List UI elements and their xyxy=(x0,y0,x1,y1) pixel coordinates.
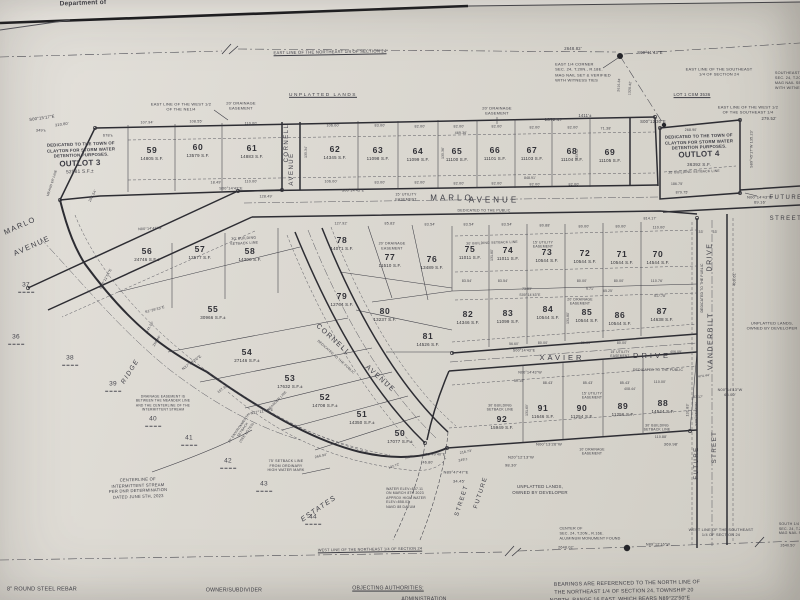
map-label: WEST LINE OF THE SOUTHEAST 1/4 OF SECTIO… xyxy=(689,528,754,538)
lot-number: 51 xyxy=(349,410,375,419)
map-label: N89°47'47"E xyxy=(444,469,469,474)
lot-68: 6811104 S.F. xyxy=(561,147,583,162)
lot-87: 8714638 S.F. xyxy=(651,307,674,322)
lot-73: 7310544 S.F. xyxy=(536,248,559,263)
map-label: 83.54' xyxy=(464,223,475,228)
map-label: 369.98' xyxy=(664,441,678,446)
map-label: 46.80' xyxy=(423,461,434,466)
lot-area: 15949 S.F. xyxy=(491,424,514,429)
map-label: DEDICATED TO THE PUBLIC xyxy=(457,209,510,214)
map-label: 82.00' xyxy=(415,125,426,130)
lot-area: 24746 S.F.± xyxy=(134,256,160,261)
map-label: 131.80' xyxy=(490,249,494,261)
map-label: 110.00' xyxy=(653,226,666,231)
lot-area: 11099 S.F. xyxy=(407,156,430,161)
map-label: SOUTH 1/4 C SEC. 24, T.2 MAG NAIL S xyxy=(779,522,800,536)
map-label: 80.00' xyxy=(538,341,548,345)
lot-number: 62 xyxy=(324,145,347,154)
map-label: LOT 1 CSM 3536 xyxy=(674,92,711,98)
lot-area: 14638 S.F. xyxy=(651,316,674,321)
map-label: 469.36' xyxy=(455,131,467,135)
lot-area: 11100 S.F. xyxy=(446,156,468,161)
lot-89: 8911256 S.F. xyxy=(612,402,635,417)
lot-50: 5017077 S.F.± xyxy=(387,429,413,444)
map-label: N50°40'40"E xyxy=(423,453,446,458)
map-label: N89°12'16"W xyxy=(646,543,670,548)
map-label: 20' DRAINAGE EASEMENT xyxy=(379,241,406,250)
lot-number: 66 xyxy=(484,146,506,155)
lot-area: 14526 S.F. xyxy=(417,341,440,346)
lot-60: 6013579 S.F. xyxy=(187,143,210,158)
lot-85: 8510544 S.F. xyxy=(576,308,599,323)
map-label: 15' UTILITY EASEMENT xyxy=(610,350,629,358)
map-label: VANDERBILT xyxy=(706,312,715,370)
lot-number: 75 xyxy=(459,245,481,254)
map-label: WATER ELEV=857.11 ON MARCH 8TH 2023 APPR… xyxy=(386,487,426,509)
lot-area: 11256 S.F. xyxy=(612,411,635,416)
map-label: 82.00' xyxy=(569,183,580,188)
lot-area: 11254 S.F. xyxy=(571,413,594,418)
map-label: 83.54' xyxy=(498,279,508,283)
map-label: 82.00' xyxy=(530,183,541,188)
map-label: 406.09' xyxy=(670,350,682,354)
lot-number: 58 xyxy=(239,247,262,256)
lot-63: 6311098 S.F. xyxy=(367,146,390,161)
lot-80: 8013237 S.F. xyxy=(374,307,397,322)
map-label: 107.94' xyxy=(140,121,153,126)
map-label: 85.43' xyxy=(583,381,593,385)
lot-74: 7411011 S.F. xyxy=(497,246,519,261)
map-label: DEDICATED TO THE PUBLIC xyxy=(633,368,683,372)
lot-83: 8311099 S.F. xyxy=(497,309,520,324)
lot-70: 7014544 S.F. xyxy=(647,250,670,265)
map-label: S00°14'43"E xyxy=(219,187,243,192)
lot-76: 7613489 S.F. xyxy=(421,255,444,270)
map-label: 848.91' xyxy=(524,176,536,180)
map-label: OWNER/SUBDIVIDER xyxy=(206,588,262,595)
lot-number: 72 xyxy=(574,249,597,258)
map-label: 1372.47' xyxy=(544,117,563,123)
map-label: MARLO xyxy=(430,194,473,205)
map-label: S00°12'30"E xyxy=(640,119,666,125)
map-label: 82.00' xyxy=(530,126,541,131)
lot-88: 8814544 S.F. xyxy=(652,399,675,414)
lot-area: 10544 S.F. xyxy=(574,258,597,263)
adjacent-lot-number: 39 xyxy=(105,381,121,392)
map-label: 83.00' xyxy=(375,124,386,129)
lot-57: 5712577 S.F. xyxy=(189,245,212,260)
map-label: 517.78' xyxy=(654,294,666,298)
map-label: EAST LINE OF THE WEST 1/2 OF THE NE1/4 xyxy=(151,102,211,113)
lot-67: 6711103 S.F. xyxy=(521,146,543,161)
lot-84: 8410544 S.F. xyxy=(537,305,560,320)
map-label: 9.71' xyxy=(586,287,594,291)
lot-number: 59 xyxy=(141,146,164,155)
map-label: 110.00' xyxy=(245,180,258,185)
map-label: 131.80' xyxy=(566,312,570,324)
lot-number: 69 xyxy=(599,148,621,157)
map-label: 15' UTILITY EASEMENT xyxy=(395,192,416,201)
lot-92: 9215949 S.F. xyxy=(491,415,514,430)
lot-82: 8214346 S.F. xyxy=(457,310,480,325)
lot-area: 14544 S.F. xyxy=(652,408,675,413)
map-label: OUTLOT 4 xyxy=(678,149,719,161)
map-label: 20' DRAINAGE EASEMENT xyxy=(226,101,256,112)
lot-number: 71 xyxy=(611,250,634,259)
map-label: 80.00' xyxy=(617,341,627,345)
map-label: 71.38' xyxy=(601,127,612,132)
map-label: S89°45'17"W 135.23' xyxy=(750,130,755,168)
map-label: 75' SETBACK LINE FROM ORDINARY HIGH WATE… xyxy=(268,459,305,473)
lot-area: 11011 S.F. xyxy=(459,254,481,259)
map-label: S00°14'43"E xyxy=(342,189,364,194)
lot-area: 13579 S.F. xyxy=(187,152,210,157)
lot-number: 60 xyxy=(187,143,210,152)
lot-61: 6114883 S.F. xyxy=(241,144,264,159)
lot-area: 13237 S.F. xyxy=(374,316,397,321)
map-label: 106.00' xyxy=(326,124,339,129)
lot-number: 68 xyxy=(561,147,583,156)
map-label: UNPLATTED LANDS xyxy=(289,93,357,99)
map-label: 82.00' xyxy=(454,125,465,130)
lot-number: 92 xyxy=(491,415,514,424)
lot-area: 11099 S.F. xyxy=(497,318,520,323)
map-label: 879.75' xyxy=(676,191,689,196)
map-label: 80.00' xyxy=(577,279,587,283)
lot-area: 11646 S.F. xyxy=(532,413,555,418)
map-label: 33' xyxy=(698,230,703,234)
map-label: 108.55' xyxy=(189,120,202,125)
lot-number: 77 xyxy=(379,253,402,262)
map-label: DRIVE xyxy=(705,243,714,272)
map-label: OUTLOT 3 xyxy=(59,158,100,170)
lot-area: 27146 S.F.± xyxy=(234,357,260,362)
map-label: 82.00' xyxy=(415,181,426,186)
map-label: 33' xyxy=(712,230,717,234)
lot-area: 10544 S.F. xyxy=(537,314,560,319)
map-label: 1411'± xyxy=(578,113,591,119)
lot-number: 88 xyxy=(652,399,675,408)
lot-number: 73 xyxy=(536,248,559,257)
map-label: UNPLATTED LANDS, OWNED BY DEVELOPER xyxy=(747,321,798,332)
adjacent-lot-number: 44 xyxy=(305,514,321,525)
lot-number: 70 xyxy=(647,250,670,259)
lot-52: 5214708 S.F.± xyxy=(312,393,338,408)
map-label: FUTURE xyxy=(694,446,702,479)
map-label: 2648.82' xyxy=(564,46,582,52)
lot-number: 81 xyxy=(417,332,440,341)
lot-area: 14544 S.F. xyxy=(647,259,670,264)
lot-91: 9111646 S.F. xyxy=(532,404,555,419)
map-label: S00°11'43"E xyxy=(637,50,662,56)
lot-area: 10544 S.F. xyxy=(609,320,632,325)
lot-58: 5814300 S.F. xyxy=(239,247,262,262)
map-label: DEDICATED TO THE TOWN OF CLAYTON FOR STO… xyxy=(47,140,116,159)
lot-area: 14708 S.F.± xyxy=(312,402,338,407)
map-label: 20' DRAINAGE EASEMENT xyxy=(482,106,512,117)
lot-area: 12577 S.F. xyxy=(189,254,212,259)
map-label: 268.90' xyxy=(685,128,697,132)
map-label: 110.88' xyxy=(655,435,667,439)
lot-66: 6611101 S.F. xyxy=(484,146,506,161)
map-label: S00°14'43"E xyxy=(513,349,535,354)
lot-area: 10544 S.F. xyxy=(536,257,559,262)
lot-area: 17632 S.F.± xyxy=(277,383,303,388)
map-label: 135.34' xyxy=(304,146,308,158)
lot-number: 83 xyxy=(497,309,520,318)
map-label: 131.69' xyxy=(525,404,529,416)
map-label: S00°14'43"E xyxy=(519,293,540,297)
map-label: 53.17' xyxy=(693,395,703,399)
lot-number: 79 xyxy=(331,292,354,301)
lot-area: 17077 S.F.± xyxy=(387,438,413,443)
lot-area: 14883 S.F. xyxy=(241,153,264,158)
lot-area: 30966 S.F.± xyxy=(200,314,226,319)
lot-area: 11510 S.F. xyxy=(379,262,402,267)
lot-71: 7110544 S.F. xyxy=(611,250,634,265)
map-label: 10' DRAINAGE EASEMENT xyxy=(579,448,604,457)
map-label: 15' UTILITY EASEMENT xyxy=(582,392,602,401)
lot-number: 56 xyxy=(134,247,160,256)
adjacent-lot-number: 43 xyxy=(256,481,272,492)
map-label: 39.15' xyxy=(514,379,524,383)
map-label: 110.76' xyxy=(651,279,663,283)
map-label: 349'± xyxy=(36,129,46,134)
lot-area: 14345 S.F. xyxy=(324,154,347,159)
lot-area: 10544 S.F. xyxy=(611,259,634,264)
lot-62: 6214345 S.F. xyxy=(324,145,347,160)
map-label: EAST LINE OF THE WEST 1/2 OF THE SOUTHEA… xyxy=(718,105,778,116)
adjacent-lot-number: 37 xyxy=(18,282,34,293)
map-label: 85.83' xyxy=(385,222,396,227)
map-label: 82.00' xyxy=(454,182,465,187)
map-label: UNPLATTED LANDS, OWNED BY DEVELOPER xyxy=(512,484,568,496)
lot-area: 11101 S.F. xyxy=(484,155,506,160)
map-label: 56.60' xyxy=(509,342,519,346)
lot-area: 11105 S.F. xyxy=(599,157,621,162)
map-label: 128.49' xyxy=(259,195,272,200)
map-label: 80.88' xyxy=(540,224,551,229)
map-label: DRIVE xyxy=(633,351,671,361)
map-label: 110.00' xyxy=(654,380,666,384)
map-label: 82.00' xyxy=(492,125,503,130)
lot-number: 63 xyxy=(367,146,390,155)
lot-65: 6511100 S.F. xyxy=(446,147,468,162)
lot-56: 5624746 S.F.± xyxy=(134,247,160,262)
map-label: 18.49' xyxy=(211,181,222,186)
map-label: 30' BUILDING SETBACK LINE xyxy=(487,404,514,413)
adjacent-lot-number: 41 xyxy=(181,435,197,446)
lot-51: 5114350 S.F.± xyxy=(349,410,375,425)
lot-area: 12764 S.F. xyxy=(331,301,354,306)
lot-number: 86 xyxy=(609,311,632,320)
map-label: 83.00' xyxy=(375,181,386,186)
map-label: 409.61' xyxy=(733,272,738,286)
map-label: 80.00' xyxy=(581,341,591,345)
map-label: 83.54' xyxy=(462,279,472,283)
lot-75: 7511011 S.F. xyxy=(459,245,481,260)
lot-number: 87 xyxy=(651,307,674,316)
map-label: 135.36' xyxy=(441,147,445,159)
map-label: 73.83' xyxy=(522,287,532,291)
lot-55: 5530966 S.F.± xyxy=(200,305,226,320)
map-label: N00°13'26"W xyxy=(536,441,562,446)
lot-area: 14346 S.F. xyxy=(457,319,480,324)
map-label: 186.75' xyxy=(671,182,683,186)
map-label: 36392 S.F. xyxy=(687,162,711,168)
map-label: STREET xyxy=(712,431,720,464)
map-label: N00°14'43"W 66.00' xyxy=(718,388,743,398)
lot-area: 11103 S.F. xyxy=(521,155,543,160)
map-label: S89°27'07"W xyxy=(695,402,700,425)
lot-number: 55 xyxy=(200,305,226,314)
map-label: 52581 S.F.± xyxy=(66,169,94,176)
map-label: 131.83' xyxy=(686,403,691,416)
map-label: 80.00' xyxy=(579,225,590,230)
map-label: 30' BUILDING SETBACK LINE xyxy=(644,424,671,433)
lot-number: 78 xyxy=(331,236,354,245)
map-label: 82.00' xyxy=(568,126,579,131)
map-label: 678'± xyxy=(103,134,113,139)
lot-number: 53 xyxy=(277,374,303,383)
lot-number: 91 xyxy=(532,404,555,413)
map-label: DEDICATED TO THE PUBLIC xyxy=(700,263,704,312)
map-label: CENTERLINE OF INTERMITTENT STREAM PER DN… xyxy=(108,476,167,500)
lot-number: 80 xyxy=(374,307,397,316)
lot-72: 7210544 S.F. xyxy=(574,249,597,264)
lot-number: 89 xyxy=(612,402,635,411)
lot-area: 11011 S.F. xyxy=(497,255,519,260)
map-label: EAST 1/4 CORNER SEC. 24, T.20N., R.18E. … xyxy=(555,61,611,82)
map-label: CENTER OF SEC. 24, T.20N., R.16E. ALUMIN… xyxy=(559,527,620,542)
lot-number: 85 xyxy=(576,308,599,317)
map-label: AVENUE xyxy=(469,196,519,207)
map-label: 279.52' xyxy=(761,116,776,122)
lot-number: 50 xyxy=(387,429,413,438)
lot-86: 8610544 S.F. xyxy=(609,311,632,326)
map-label: AVENUE xyxy=(289,152,297,185)
lot-78: 7814071 S.F. xyxy=(331,236,354,251)
lot-area: 11098 S.F. xyxy=(367,155,390,160)
adjacent-lot-number: 36 xyxy=(8,334,24,345)
lot-53: 5317632 S.F.± xyxy=(277,374,303,389)
map-label: 814.17' xyxy=(643,217,656,222)
map-label: 34.45' xyxy=(453,478,465,483)
map-label: OBJECTING AUTHORITIES: xyxy=(352,586,424,593)
map-label: SOUTHEAST CO SEC. 24, T.20N MAG NAIL SET… xyxy=(775,71,800,91)
lot-number: 67 xyxy=(521,146,543,155)
lot-area: 13489 S.F. xyxy=(421,264,444,269)
scanned-plat-sheet: Department ofEAST LINE OF THE NORTHEAST … xyxy=(0,0,800,600)
lot-69: 6911105 S.F. xyxy=(599,148,621,163)
lot-81: 8114526 S.F. xyxy=(417,332,440,347)
lot-54: 5427146 S.F.± xyxy=(234,348,260,363)
lot-area: 14805 S.F. xyxy=(141,155,164,160)
lot-64: 6411099 S.F. xyxy=(407,147,430,162)
lot-number: 90 xyxy=(571,404,594,413)
map-label: 2648.02' xyxy=(558,546,574,551)
map-label: 85.43' xyxy=(620,381,630,385)
map-label: 127.92' xyxy=(334,222,347,227)
map-label: XAVIER xyxy=(540,353,585,363)
plat-linework xyxy=(0,0,800,600)
map-label: 88.43' xyxy=(543,381,553,385)
lot-number: 76 xyxy=(421,255,444,264)
lot-number: 74 xyxy=(497,246,519,255)
map-label: 408.44' xyxy=(624,387,636,391)
lot-number: 52 xyxy=(312,393,338,402)
lot-area: 14350 S.F.± xyxy=(349,419,375,424)
map-label: 83.54' xyxy=(502,223,513,228)
lot-area: 14071 S.F. xyxy=(331,245,354,250)
map-label: 2640.50' xyxy=(781,544,796,549)
map-label: 20' DRAINAGE EASEMENT xyxy=(567,298,592,307)
adjacent-lot-number: 38 xyxy=(62,355,78,366)
map-label: FUTURE xyxy=(769,195,800,203)
lot-area: 14300 S.F. xyxy=(239,256,262,261)
lot-number: 54 xyxy=(234,348,260,357)
lot-area: 11104 S.F. xyxy=(561,156,583,161)
map-label: 8" ROUND STEEL REBAR xyxy=(7,586,77,593)
lot-79: 7912764 S.F. xyxy=(331,292,354,307)
lot-number: 82 xyxy=(457,310,480,319)
lot-area: 10544 S.F. xyxy=(576,317,599,322)
map-label: N00°14'43"W xyxy=(518,371,542,376)
map-label: 82.00' xyxy=(492,182,503,187)
lot-number: 64 xyxy=(407,147,430,156)
lot-77: 7711510 S.F. xyxy=(379,253,402,268)
map-label: DRAINAGE EASEMENT IS BETWEEN THE MEANDER… xyxy=(136,394,190,411)
adjacent-lot-number: 40 xyxy=(145,416,161,427)
lot-number: 65 xyxy=(446,147,468,156)
map-label: 2616.84 xyxy=(616,78,621,92)
lot-number: 57 xyxy=(189,245,212,254)
map-label: 80.00' xyxy=(614,279,624,283)
lot-number: 61 xyxy=(241,144,264,153)
map-label: EAST LINE OF THE SOUTHEAST 1/4 OF SECTIO… xyxy=(686,67,753,78)
map-label: 65.25' xyxy=(603,289,613,293)
map-label: 110.00' xyxy=(245,122,258,127)
map-label: 80.00' xyxy=(616,225,627,230)
lot-59: 5914805 S.F. xyxy=(141,146,164,161)
map-label: STREET xyxy=(770,216,800,224)
map-label: N20°12'13"W xyxy=(508,454,534,459)
map-label: 98.30' xyxy=(505,462,517,467)
lot-90: 9011254 S.F. xyxy=(571,404,594,419)
lot-number: 84 xyxy=(537,305,560,314)
map-label: 106.00' xyxy=(324,180,337,185)
map-label: 83.54' xyxy=(425,223,436,228)
adjacent-lot-number: 42 xyxy=(220,458,236,469)
